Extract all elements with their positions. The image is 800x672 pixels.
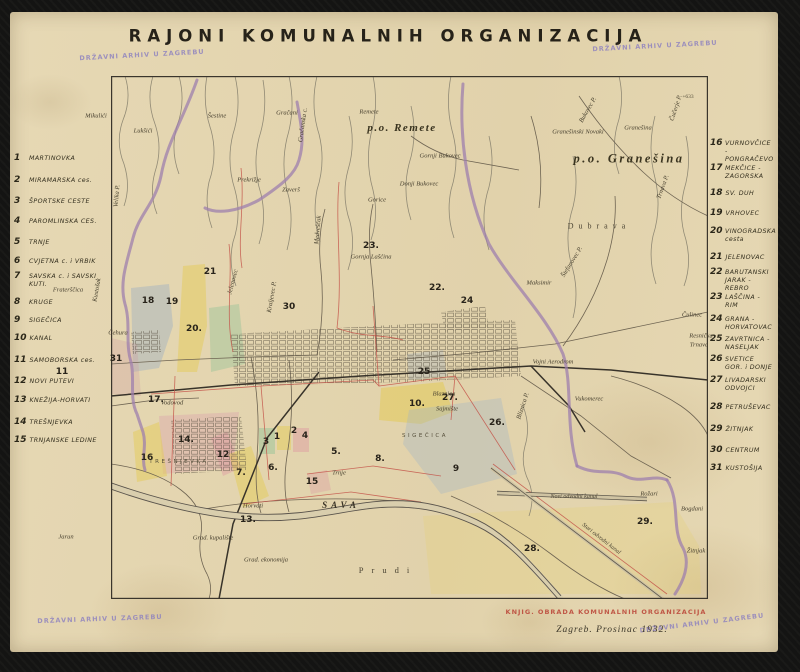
district-name: LIVADARSKI ODVOJCI	[725, 375, 774, 393]
map-district-number: 17.	[148, 395, 164, 405]
map-district-number: 26.	[489, 418, 505, 428]
map-place-label: Fraterščica	[53, 287, 83, 294]
district-list-item: 4 PAROMLINSKA CES.	[14, 216, 114, 226]
district-name: CENTRUM	[726, 445, 760, 455]
district-name: KANAL	[30, 333, 53, 343]
district-list-item: 29 ŽITNJAK	[710, 424, 774, 434]
district-number: 29	[710, 424, 723, 434]
district-number: 10	[14, 333, 27, 343]
date-line: Zagreb. Prosinac 1932.	[556, 625, 668, 635]
district-name: KNEŽIJA-HORVATI	[30, 395, 91, 405]
district-name: ŠPORTSKE CESTE	[29, 196, 90, 206]
map-place-label: Jarun	[58, 534, 73, 541]
map-district-number: 20.	[186, 324, 202, 334]
district-number: 22	[710, 267, 722, 277]
district-name: SV. DUH	[726, 188, 755, 198]
map-place-label: Bogdani	[681, 506, 703, 513]
district-list-item: 5 TRNJE	[14, 237, 114, 247]
district-list-item: 20 VINOGRADSKA cesta	[710, 226, 774, 244]
district-list-item: 12 NOVI PUTEVI	[14, 376, 114, 386]
district-number: 28	[710, 402, 723, 412]
map-place-label: Remete	[359, 109, 378, 116]
map-district-number: 9	[453, 464, 459, 474]
map-place-label: Prudi	[359, 565, 417, 575]
district-list-item: 16 VURNOVČICE - PONGRAČEVO	[710, 138, 774, 164]
district-list-item: 31 KUSTOŠIJA	[710, 463, 774, 473]
district-number: 20	[710, 226, 722, 236]
map-district-number: 22.	[429, 283, 445, 293]
district-list-item: 15 TRNJANSKE LEDINE	[14, 435, 114, 445]
district-number: 9	[14, 315, 26, 325]
district-list-item: 11 SAMOBORSKA ces.	[14, 355, 114, 365]
map-district-number: 2	[291, 426, 297, 436]
map-district-number: 29.	[637, 517, 653, 527]
map-place-label: Donji Bukovec	[400, 181, 438, 188]
district-name: MIRAMARSKA ces.	[29, 175, 92, 185]
map-district-number: 7.	[236, 468, 246, 478]
map-district-number: 15	[306, 477, 319, 487]
map-place-label: Mikulići	[85, 113, 107, 120]
district-list-item: 2 MIRAMARSKA ces.	[14, 175, 114, 185]
district-number: 5	[14, 237, 26, 247]
district-number: 18	[710, 188, 723, 198]
map-district-number: 28.	[524, 544, 540, 554]
district-name: BARUTANSKI JARAK - REBRO	[725, 267, 774, 293]
district-list-item: 23 LAŠČINA - RIM	[710, 292, 774, 310]
map-district-number: 11	[56, 367, 69, 377]
map-place-label: Žitnjak	[687, 548, 705, 555]
district-name: PAROMLINSKA CES.	[29, 216, 97, 226]
map-place-label: Čulinec	[682, 312, 702, 319]
district-name: JELENOVAC	[726, 252, 765, 262]
district-number: 7	[14, 271, 26, 281]
map-district-number: 21	[204, 267, 217, 277]
map-district-number: 13.	[240, 515, 256, 525]
map-district-number: 4	[302, 431, 308, 441]
district-number: 3	[14, 196, 26, 206]
map-district-number: 24	[461, 296, 474, 306]
district-name: TRNJE	[29, 237, 50, 247]
district-list-item: 13 KNEŽIJA-HORVATI	[14, 395, 114, 405]
map-place-label: Vukomerec	[575, 396, 604, 403]
district-list-item: 17 MEKČICE - ZAGORSKA	[710, 163, 774, 181]
district-number: 13	[14, 395, 27, 405]
district-list-item: 30 CENTRUM	[710, 445, 774, 455]
map-place-label: SAVA	[322, 500, 360, 510]
map-place-label: Rožari	[640, 491, 657, 498]
district-number: 19	[710, 208, 723, 218]
map-place-label: Prekrižje	[237, 177, 261, 184]
map-place-label: Zaverš	[282, 187, 300, 194]
district-list-item: 26 SVETICE GOR. i DONJE	[710, 354, 774, 372]
district-name: NOVI PUTEVI	[30, 376, 75, 386]
map-district-number: 5.	[331, 447, 341, 457]
scanned-map-page: { "palette":{ "paper":"#e6d8b4", "ink":"…	[0, 0, 800, 672]
map-place-label: Gornja Lašćina	[351, 254, 392, 261]
map-place-label: Novi odvodni kanal	[551, 494, 598, 500]
map-place-label: Gornji Bukovec	[420, 153, 461, 160]
map-place-label: Maksimir	[527, 280, 552, 287]
district-list-item: 22 BARUTANSKI JARAK - REBRO	[710, 267, 774, 293]
map-district-number: 31	[110, 354, 123, 364]
map-place-label: Grad. kupalište	[193, 535, 233, 542]
map-place-label: Šestine	[208, 113, 226, 120]
map-place-label: p.o. Remete	[367, 122, 436, 134]
district-name: SIGEČICA	[29, 315, 62, 325]
district-number: 16	[710, 138, 722, 148]
map-place-label: Gračani	[276, 110, 298, 117]
district-list-item: 28 PETRUŠEVAC	[710, 402, 774, 412]
district-number: 26	[710, 354, 722, 364]
district-list-item: 21 JELENOVAC	[710, 252, 774, 262]
district-number: 31	[710, 463, 723, 473]
district-list-item: 9 SIGEČICA	[14, 315, 114, 325]
map-district-number: 18	[142, 296, 155, 306]
district-name: LAŠČINA - RIM	[725, 292, 774, 310]
district-list-item: 6 CVJETNA c. i VRBIK	[14, 256, 114, 266]
map-place-label: p.o. Granešina	[573, 152, 684, 167]
district-number: 27	[710, 375, 722, 385]
district-number: 23	[710, 292, 722, 302]
district-name: MARTINOVKA	[29, 153, 75, 163]
red-cataloguing-stamp: KNJIG. OBRADA KOMUNALNIH ORGANIZACIJA	[506, 608, 707, 616]
map-title: RAJONI KOMUNALNIH ORGANIZACIJA	[129, 27, 648, 46]
district-number: 12	[14, 376, 27, 386]
map-place-label: +633	[682, 94, 693, 100]
district-list-item: 10 KANAL	[14, 333, 114, 343]
district-number: 11	[14, 355, 27, 365]
map-district-number: 3	[263, 437, 269, 447]
map-place-label: Vojni Aerodrom	[533, 359, 574, 366]
district-list-item: 18 SV. DUH	[710, 188, 774, 198]
district-list-item: 14 TREŠNJEVKA	[14, 417, 114, 427]
district-name: TRNJANSKE LEDINE	[30, 435, 97, 445]
map-district-number: 14.	[178, 435, 194, 445]
map-place-label: Vodovod	[161, 400, 183, 407]
district-name: ŽITNJAK	[726, 424, 754, 434]
district-number: 14	[14, 417, 27, 427]
map-place-label: Granešinski Novaki	[552, 129, 603, 136]
map-district-number: 19	[166, 297, 179, 307]
map-district-number: 30	[283, 302, 296, 312]
district-number: 24	[710, 314, 722, 324]
district-name: ZAVRTNICA - NASELJAK	[725, 334, 774, 352]
district-name: KRUGE	[29, 297, 53, 307]
district-number: 17	[710, 163, 722, 173]
map-place-label: Granešina	[624, 125, 651, 132]
map-place-label: Lukšići	[134, 128, 153, 135]
district-number: 2	[14, 175, 26, 185]
district-name: SVETICE GOR. i DONJE	[725, 354, 774, 372]
district-name: VRHOVEC	[726, 208, 760, 218]
map-place-label: Trnje	[332, 470, 346, 477]
map-district-number: 23.	[363, 241, 379, 251]
district-list-item: 1 MARTINOVKA	[14, 153, 114, 163]
district-number: 8	[14, 297, 26, 307]
map-place-label: TREŠNJEVKA	[149, 459, 208, 465]
map-district-number: 10.	[409, 399, 425, 409]
district-name: TREŠNJEVKA	[30, 417, 74, 427]
map-place-label: Grad. ekonomija	[244, 557, 288, 564]
district-number: 1	[14, 153, 26, 163]
map-district-number: 6.	[268, 463, 278, 473]
map-district-number: 12	[217, 450, 230, 460]
map-district-number: 25	[418, 367, 431, 377]
district-list-item: 3 ŠPORTSKE CESTE	[14, 196, 114, 206]
map-place-label: Trnava	[690, 342, 708, 349]
district-name: MEKČICE - ZAGORSKA	[725, 163, 774, 181]
map-district-number: 27.	[442, 393, 458, 403]
district-list-item: 19 VRHOVEC	[710, 208, 774, 218]
district-name: CVJETNA c. i VRBIK	[29, 256, 96, 266]
district-list-item: 25 ZAVRTNICA - NASELJAK	[710, 334, 774, 352]
district-list-item: 24 GRANA - HORVATOVAC	[710, 314, 774, 332]
map-place-label: Horvati	[243, 503, 263, 510]
district-number: 4	[14, 216, 26, 226]
map-place-label: Čehura	[108, 330, 128, 337]
map-place-label: Dubrava	[568, 222, 631, 231]
district-name: PETRUŠEVAC	[726, 402, 771, 412]
district-name: KUSTOŠIJA	[726, 463, 763, 473]
map-district-number: 1	[274, 432, 280, 442]
map-district-number: 16	[141, 453, 154, 463]
district-list-item: 27 LIVADARSKI ODVOJCI	[710, 375, 774, 393]
district-name: GRANA - HORVATOVAC	[725, 314, 774, 332]
map-place-label: SIGEČICA	[402, 433, 448, 439]
district-number: 21	[710, 252, 723, 262]
district-number: 15	[14, 435, 27, 445]
map-place-label: Sajmište	[436, 406, 458, 413]
map-place-label: Resnička	[689, 333, 712, 340]
district-number: 6	[14, 256, 26, 266]
map-place-label: Gorice	[368, 197, 386, 204]
district-name: VURNOVČICE - PONGRAČEVO	[725, 138, 774, 164]
map-district-number: 8.	[375, 454, 385, 464]
district-name: SAMOBORSKA ces.	[30, 355, 95, 365]
district-name: VINOGRADSKA cesta	[725, 226, 776, 244]
district-number: 30	[710, 445, 723, 455]
